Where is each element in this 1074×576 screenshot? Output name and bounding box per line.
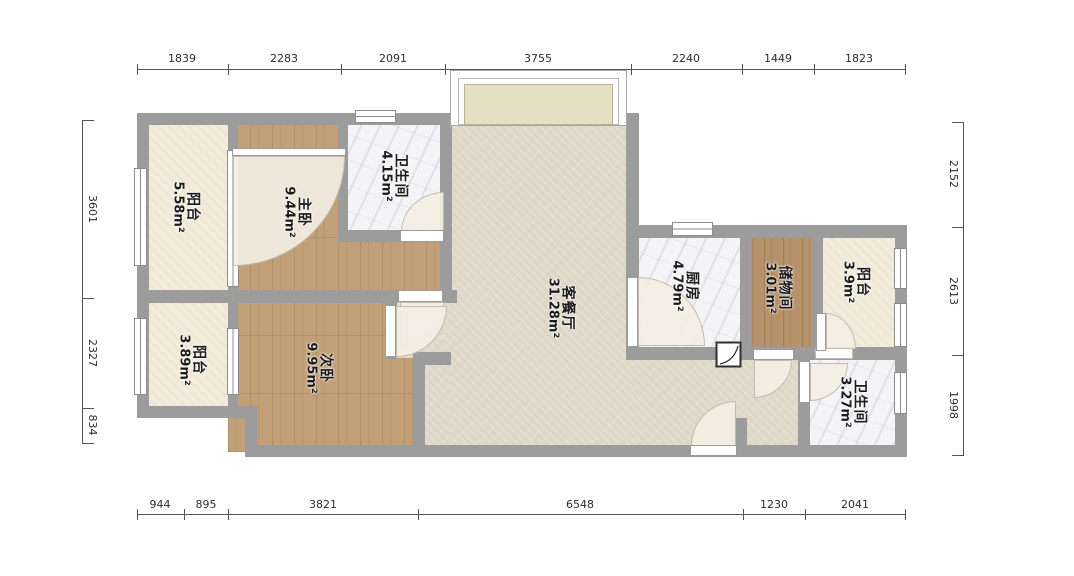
room-label-living-dining: 客餐厅 31.28m² [544,278,575,338]
room-area: 3.27m² [836,376,851,427]
room-name: 次卧 [317,353,333,383]
room-name: 卫生间 [392,153,408,198]
room-label-balcony-ne: 阳台 3.9m² [839,261,870,303]
wall [137,113,457,125]
dim-tick [905,509,906,520]
door-leaf [398,290,443,302]
entrance-door-leaf [690,445,737,456]
dim-tick [228,64,229,75]
room-area: 3.89m² [175,334,190,385]
door-leaf [385,305,396,357]
dim-label: 834 [85,395,99,455]
wall [228,113,238,151]
window [894,372,907,414]
floor-living-dining [443,116,635,452]
wall [740,238,751,350]
dim-tick [137,64,138,75]
room-label-bathroom-2: 卫生间 3.27m² [836,376,867,427]
door-leaf [816,313,826,351]
dim-label: 2240 [656,52,716,66]
room-area: 4.15m² [377,150,392,201]
room-area: 31.28m² [544,278,559,338]
room-name: 阳台 [190,345,206,375]
room-area: 3.01m² [761,262,776,313]
room-area: 3.9m² [839,261,854,303]
wall [228,394,238,418]
dim-label: 2091 [363,52,423,66]
balcony-door-frame [227,328,239,395]
room-label-balcony-sw: 阳台 3.89m² [175,334,206,385]
wall [413,352,425,457]
dim-label: 2041 [825,498,885,512]
window [134,168,147,266]
dim-tick [814,64,815,75]
dim-tick [952,355,964,356]
door-leaf [753,349,794,360]
dim-line-right [963,122,964,455]
door-leaf [232,148,346,156]
floor-plan: 阳台 5.58m² 主卧 9.44m² 卫生间 4.15m² 客餐厅 31.28… [0,0,1074,576]
wall [137,406,257,418]
dim-label: 1449 [748,52,808,66]
window [672,222,713,236]
room-area: 9.44m² [280,186,295,237]
room-name: 主卧 [295,197,311,227]
dim-label: 2613 [946,261,960,321]
room-label-bathroom-1: 卫生间 4.15m² [377,150,408,201]
bay-window-sill [464,84,613,125]
dim-tick [82,120,94,121]
room-name: 阳台 [184,192,200,222]
dim-tick [952,227,964,228]
room-label-storage: 储物间 3.01m² [761,262,792,313]
dim-label: 3821 [293,498,353,512]
dim-label: 1998 [946,375,960,435]
room-name: 卫生间 [851,379,867,424]
room-label-kitchen: 厨房 4.79m² [668,260,699,311]
dim-line-bottom [137,514,905,515]
wall [338,230,402,242]
door-leaf [400,230,444,242]
wall [228,286,238,303]
room-name: 储物间 [776,265,792,310]
dim-line-left [82,120,83,443]
wall [245,406,257,457]
dim-tick [341,64,342,75]
room-name: 厨房 [683,271,699,301]
dim-label: 2283 [254,52,314,66]
room-area: 5.58m² [169,181,184,232]
dim-tick [631,64,632,75]
wall [228,303,238,329]
window [894,303,907,347]
dim-label: 3755 [508,52,568,66]
window [894,248,907,289]
room-label-balcony-nw: 阳台 5.58m² [169,181,200,232]
dim-line-top [137,69,905,70]
door-leaf [799,361,810,403]
window [134,318,147,395]
dim-tick [905,64,906,75]
dim-tick [445,64,446,75]
pipe-shaft-icon [715,341,742,368]
dim-tick [805,509,806,520]
dim-tick [952,455,964,456]
room-area: 9.95m² [302,342,317,393]
room-name: 客餐厅 [559,286,575,331]
dim-label: 1823 [829,52,889,66]
dim-label: 1230 [744,498,804,512]
room-label-second-bedroom: 次卧 9.95m² [302,342,333,393]
dim-tick [952,122,964,123]
dim-label: 2152 [946,144,960,204]
dim-label: 1839 [152,52,212,66]
room-label-master-bedroom: 主卧 9.44m² [280,186,311,237]
dim-tick [742,64,743,75]
room-name: 阳台 [854,267,870,297]
dim-tick [82,298,94,299]
room-area: 4.79m² [668,260,683,311]
wall [137,290,398,303]
door-leaf [627,277,638,347]
dim-label: 6548 [550,498,610,512]
window [355,110,396,123]
wall [626,225,907,238]
dim-label: 895 [176,498,236,512]
dim-tick [418,509,419,520]
dim-label: 3601 [85,179,99,239]
dim-label: 2327 [85,323,99,383]
